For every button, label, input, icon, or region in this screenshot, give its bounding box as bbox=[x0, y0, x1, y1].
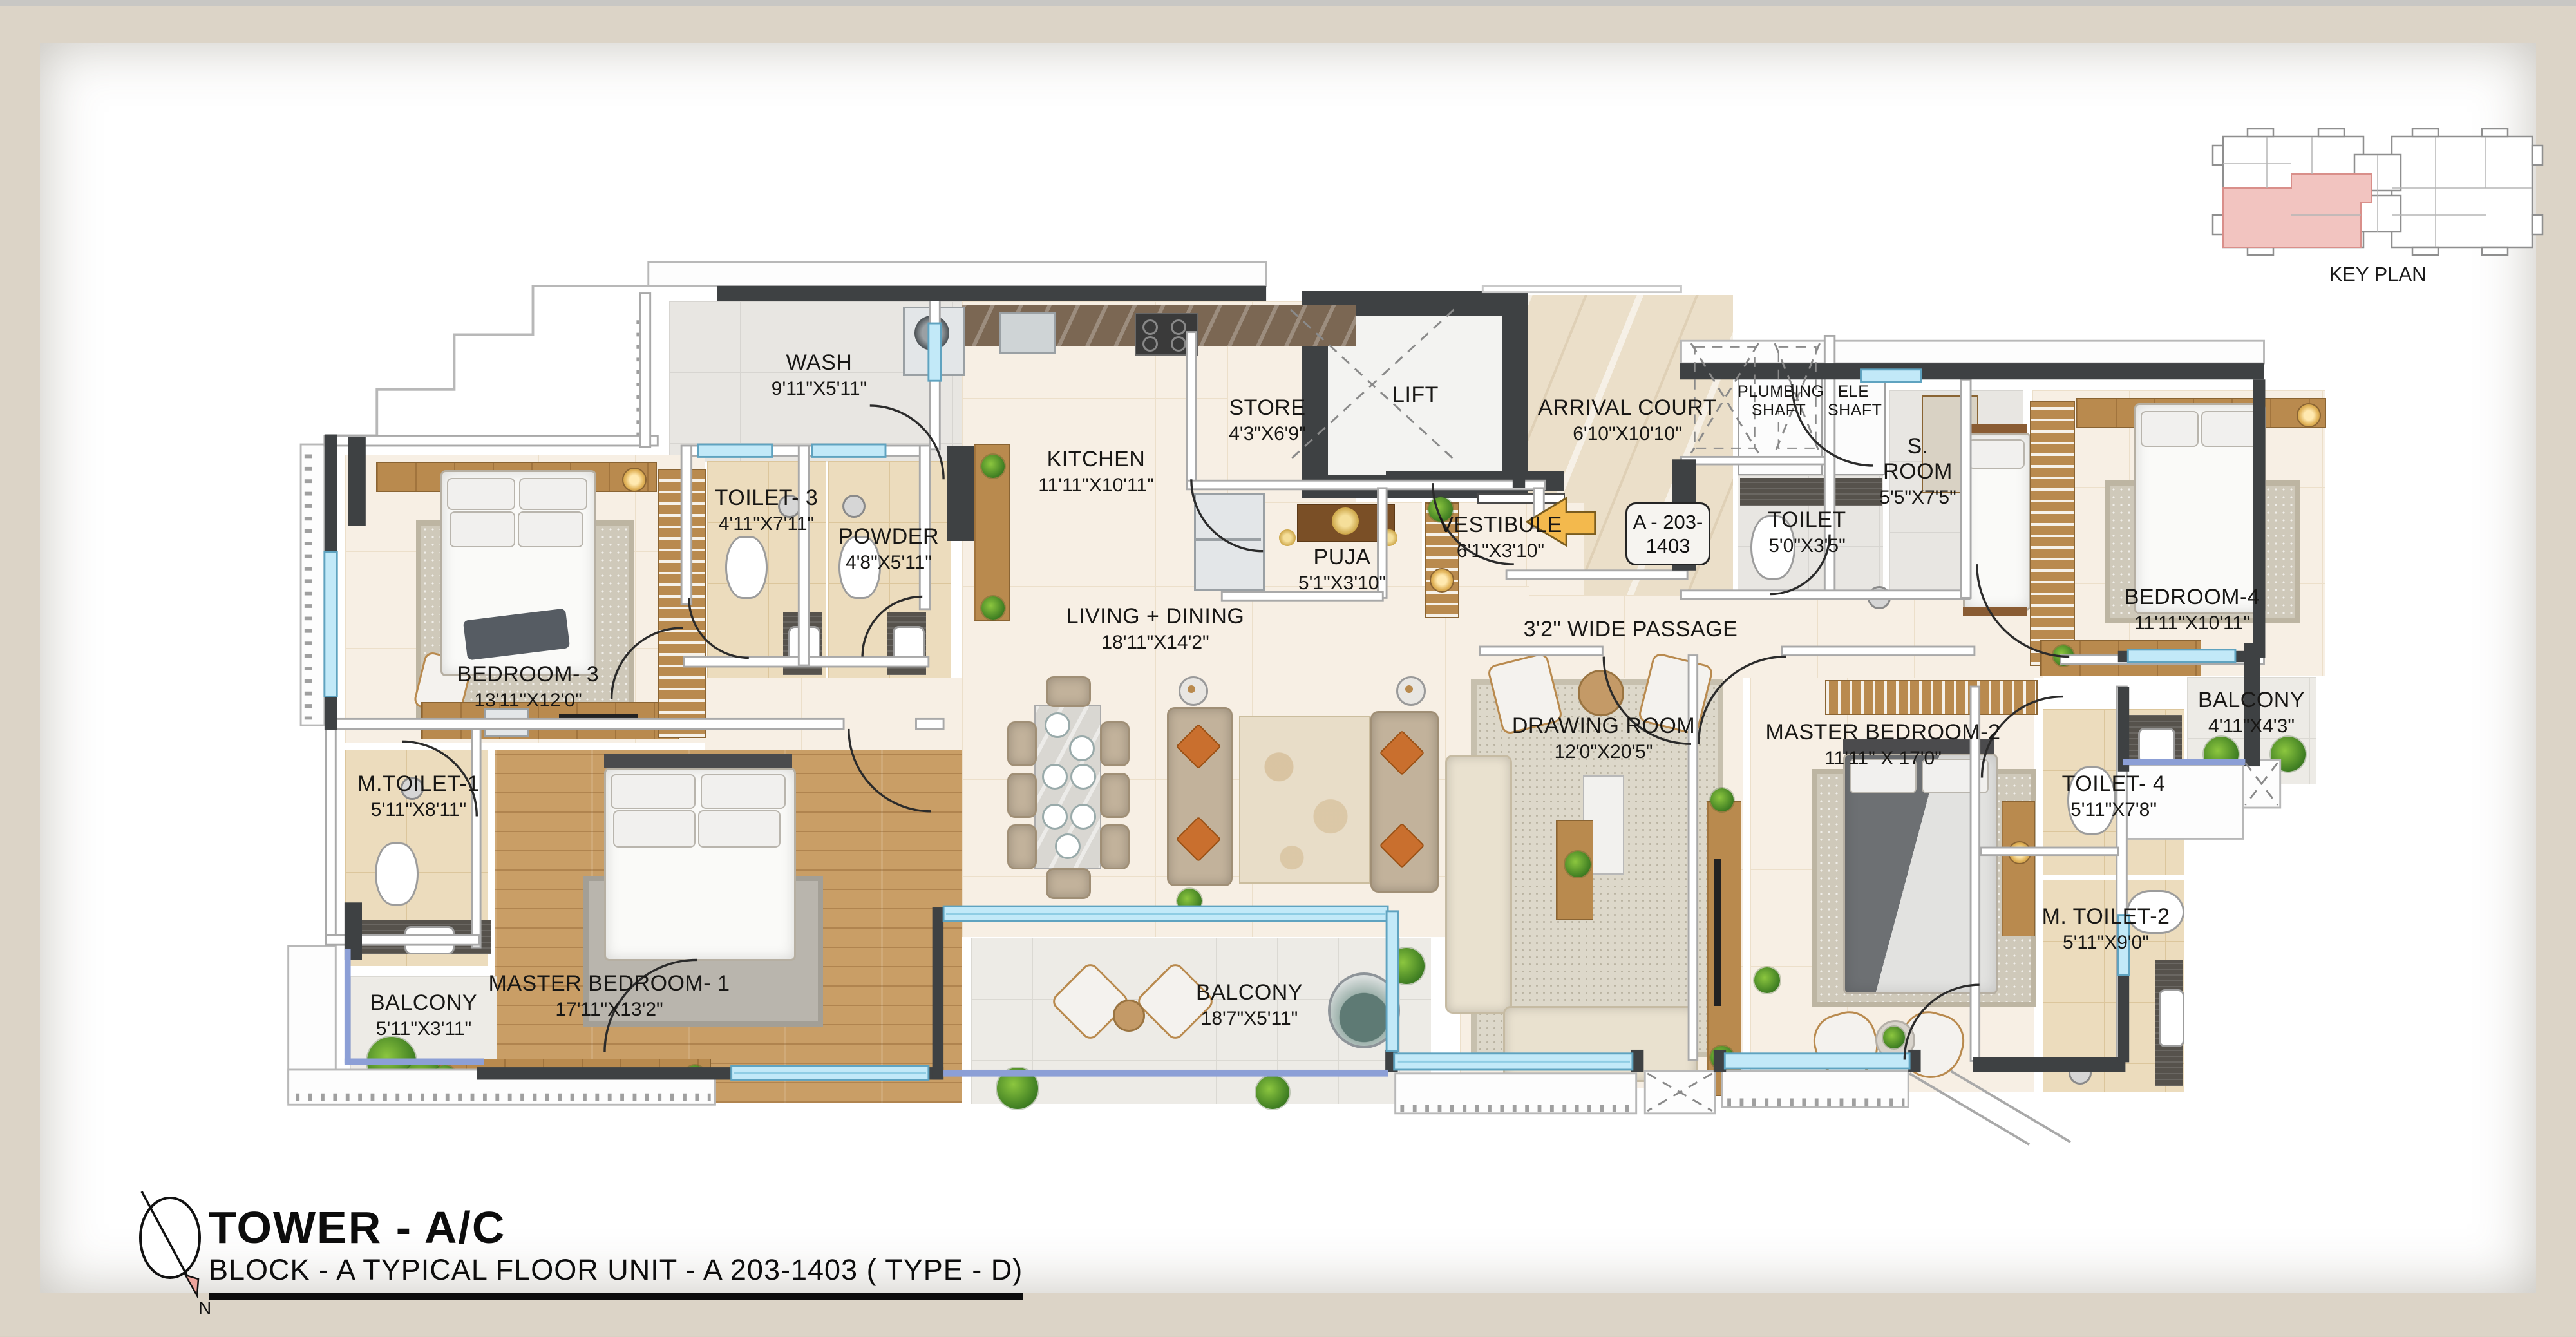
dining-chair-icon bbox=[1100, 721, 1130, 766]
console-icon bbox=[2002, 801, 2035, 936]
plant-icon bbox=[684, 1065, 706, 1087]
round-table-icon bbox=[1578, 670, 1624, 716]
room-label-wash: WASH9'11"X5'11" bbox=[772, 350, 867, 400]
wardrobe-icon bbox=[1825, 680, 2038, 715]
kitchen-sink-icon bbox=[999, 312, 1056, 354]
tv-icon bbox=[559, 714, 638, 721]
dining-chair-icon bbox=[1007, 824, 1037, 869]
plate-icon bbox=[1069, 735, 1095, 761]
room-label-living-dining: LIVING + DINING18'11"X14'2" bbox=[1066, 604, 1245, 654]
dining-chair-icon bbox=[1100, 773, 1130, 818]
laptop-icon bbox=[484, 708, 529, 737]
decor-disc-icon bbox=[1381, 529, 1397, 546]
plant-icon bbox=[1883, 1027, 1905, 1048]
burner-icon bbox=[1142, 319, 1158, 335]
plant-icon bbox=[2271, 737, 2306, 772]
dining-chair-icon bbox=[1100, 824, 1130, 869]
room-label-balcony-bottom-left: BALCONY5'11"X3'11" bbox=[370, 991, 477, 1040]
room-label-bedroom-3: BEDROOM- 313'11"X12'0" bbox=[457, 662, 599, 712]
room-label-balcony-right: BALCONY4'11"X4'3" bbox=[2198, 688, 2305, 737]
compass-north-text: N bbox=[198, 1298, 211, 1316]
plant-icon bbox=[1710, 788, 1734, 811]
room-label-plumbing-shaft: PLUMBING SHAFT bbox=[1738, 383, 1820, 420]
lift-lobby-wall bbox=[1386, 471, 1564, 491]
burner-icon bbox=[1171, 336, 1186, 352]
tv-icon bbox=[495, 1069, 623, 1077]
pillow-icon bbox=[447, 478, 515, 510]
sink-icon bbox=[2138, 728, 2175, 764]
plant-icon bbox=[2204, 737, 2239, 772]
shower-icon bbox=[842, 495, 866, 518]
room-label-lift: LIFT bbox=[1392, 383, 1439, 408]
sofa-icon bbox=[1445, 755, 1512, 1014]
bed-headboard bbox=[1963, 424, 2027, 433]
swing-chair-icon bbox=[1328, 972, 1400, 1048]
plan-canvas: WASH9'11"X5'11" TOILET- 34'11"X7'11" POW… bbox=[40, 43, 2536, 1293]
room-label-passage: 3'2" WIDE PASSAGE bbox=[1524, 617, 1738, 642]
pillow-icon bbox=[1968, 439, 2025, 469]
page-title: TOWER - A/C bbox=[209, 1202, 506, 1253]
floor-plan-page: { "title": { "tower": "TOWER - A/C", "bl… bbox=[0, 0, 2576, 1336]
shower-icon bbox=[1868, 586, 1891, 609]
compass-icon: N bbox=[130, 1188, 214, 1316]
unit-number-tag: A - 203- 1403 bbox=[1625, 502, 1710, 565]
room-label-master-bedroom-2: MASTER BEDROOM-211'11" X 17'0" bbox=[1765, 720, 2000, 770]
plate-icon bbox=[1055, 833, 1081, 859]
room-label-vestibule: VESTIBULE6'1"X3'10" bbox=[1439, 513, 1562, 562]
room-label-store: STORE4'3"X6'9" bbox=[1229, 395, 1306, 445]
plant-icon bbox=[1388, 948, 1425, 984]
dining-chair-icon bbox=[1046, 676, 1091, 707]
room-label-master-bedroom-1: MASTER BEDROOM- 117'11"X13'2" bbox=[489, 971, 730, 1021]
room-label-powder: POWDER4'8"X5'11" bbox=[838, 524, 939, 574]
room-label-s-room: S. ROOM5'5"X7'5" bbox=[1876, 434, 1960, 509]
plant-icon bbox=[1710, 1046, 1734, 1069]
key-plan-label: KEY PLAN bbox=[2329, 263, 2426, 286]
room-label-arrival-court: ARRIVAL COURT6'10"X10'10" bbox=[1538, 395, 1717, 445]
plate-icon bbox=[1042, 804, 1068, 830]
sofa-icon bbox=[1503, 1006, 1698, 1082]
sink-icon bbox=[893, 626, 925, 663]
island-counter-dark bbox=[947, 446, 974, 541]
speaker-core bbox=[1188, 685, 1195, 693]
pillow-icon bbox=[701, 774, 786, 809]
north-compass: N bbox=[130, 1188, 214, 1316]
wardrobe-icon bbox=[2030, 401, 2075, 666]
puja-idol-icon bbox=[1332, 507, 1359, 535]
pillow-icon bbox=[698, 810, 781, 848]
floor-plan: WASH9'11"X5'11" TOILET- 34'11"X7'11" POW… bbox=[40, 43, 2536, 1293]
plant-icon bbox=[997, 1068, 1038, 1109]
room-label-ele-shaft: ELE SHAFT bbox=[1828, 383, 1879, 420]
unit-number-line2: 1403 bbox=[1646, 534, 1690, 558]
sink-icon bbox=[2159, 989, 2184, 1047]
plant-icon bbox=[1565, 851, 1591, 877]
wardrobe-icon bbox=[658, 469, 706, 738]
pillow-icon bbox=[519, 478, 587, 510]
bed-headboard bbox=[604, 754, 792, 768]
dining-chair-icon bbox=[1007, 721, 1037, 766]
living-rug-icon bbox=[1239, 716, 1370, 884]
room-label-m-toilet-2: M. TOILET-25'11"X9'0" bbox=[2042, 904, 2170, 954]
plant-icon bbox=[434, 1065, 456, 1087]
room-label-puja: PUJA5'1"X3'10" bbox=[1298, 545, 1386, 594]
vanity-counter bbox=[1740, 478, 1882, 506]
room-label-drawing-room: DRAWING ROOM12'0"X20'5" bbox=[1512, 714, 1695, 763]
speaker-core bbox=[1405, 685, 1413, 693]
compass-needle bbox=[185, 1275, 198, 1296]
plant-icon bbox=[2053, 645, 2074, 666]
plate-icon bbox=[1070, 804, 1096, 830]
plant-icon bbox=[1754, 967, 1780, 993]
tv-icon bbox=[1714, 859, 1721, 1006]
page-subtitle: BLOCK - A TYPICAL FLOOR UNIT - A 203-140… bbox=[209, 1253, 1023, 1300]
wall-lamp-icon bbox=[2297, 403, 2321, 428]
fridge-icon bbox=[1194, 493, 1265, 591]
burner-icon bbox=[1142, 336, 1158, 352]
wc-icon bbox=[725, 536, 768, 599]
shower-icon bbox=[2069, 1061, 2092, 1085]
plate-icon bbox=[1070, 764, 1096, 790]
pillow-icon bbox=[611, 774, 696, 809]
plant-icon bbox=[1177, 889, 1202, 913]
dining-chair-icon bbox=[1007, 773, 1037, 818]
pillow-icon bbox=[518, 511, 583, 547]
burner-icon bbox=[1171, 319, 1186, 335]
tv-console bbox=[426, 1059, 711, 1097]
plate-icon bbox=[1045, 712, 1070, 738]
room-lobby-strip bbox=[705, 678, 962, 750]
plate-icon bbox=[1042, 764, 1068, 790]
main-door-leaf bbox=[1477, 493, 1565, 504]
fridge-divider bbox=[1194, 538, 1261, 541]
washing-machine-drum bbox=[914, 316, 949, 350]
dining-chair-icon bbox=[1046, 868, 1091, 899]
plant-icon bbox=[981, 596, 1005, 620]
key-plan-drawing bbox=[2209, 112, 2546, 280]
pillow-icon bbox=[2201, 411, 2259, 447]
room-label-bedroom-4: BEDROOM-411'11"X10'11" bbox=[2125, 585, 2260, 634]
plant-icon bbox=[1256, 1076, 1289, 1109]
wc-icon bbox=[375, 842, 419, 906]
room-label-toilet-4: TOILET- 45'11"X7'8" bbox=[2062, 772, 2166, 821]
room-label-m-toilet-1: M.TOILET-15'11"X8'11" bbox=[357, 772, 480, 821]
pillow-icon bbox=[450, 511, 515, 547]
room-label-toilet: TOILET5'0"X3'5" bbox=[1768, 507, 1846, 557]
wall-lamp-icon bbox=[1430, 568, 1454, 593]
wall-lamp-icon bbox=[2008, 841, 2031, 864]
sink-icon bbox=[404, 926, 455, 954]
unit-number-line1: A - 203- bbox=[1633, 510, 1703, 534]
decor-disc-icon bbox=[1279, 529, 1296, 546]
pillow-icon bbox=[2141, 411, 2199, 447]
plant-icon bbox=[981, 455, 1005, 478]
key-plan bbox=[2209, 112, 2546, 280]
bed-footboard bbox=[1963, 607, 2027, 616]
sink-icon bbox=[788, 626, 820, 663]
pillow-icon bbox=[613, 810, 696, 848]
room-label-toilet-3: TOILET- 34'11"X7'11" bbox=[715, 486, 819, 535]
wall-lamp-icon bbox=[622, 468, 647, 492]
room-label-balcony-center: BALCONY18'7"X5'11" bbox=[1196, 980, 1303, 1030]
room-label-kitchen: KITCHEN11'11"X10'11" bbox=[1038, 447, 1154, 497]
side-table-icon bbox=[1113, 1000, 1145, 1032]
